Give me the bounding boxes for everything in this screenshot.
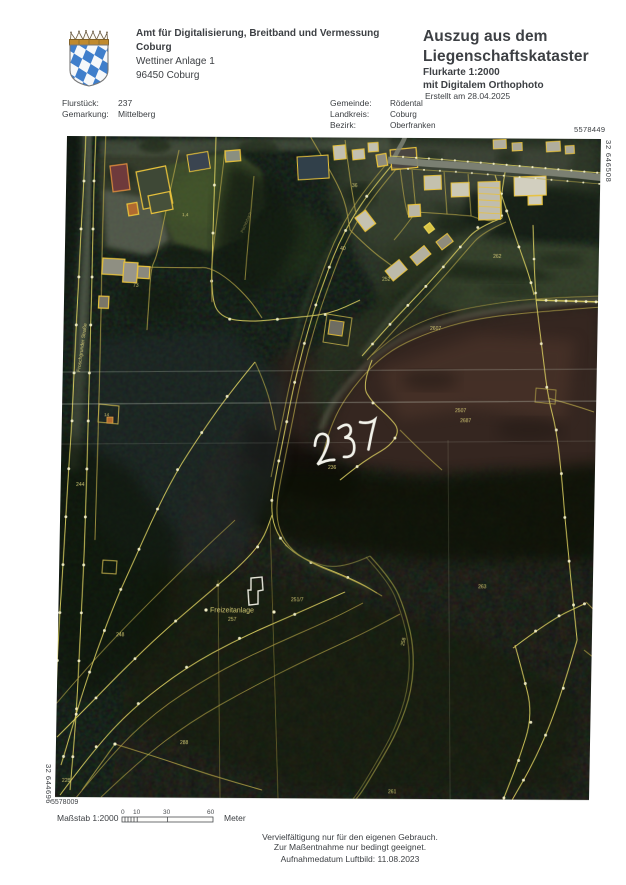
svg-text:10: 10: [133, 809, 141, 816]
svg-text:60: 60: [207, 809, 215, 816]
svg-text:Freizeitanlage: Freizeitanlage: [210, 607, 254, 614]
svg-text:228: 228: [62, 778, 71, 784]
svg-text:262: 262: [493, 254, 502, 260]
svg-text:248: 248: [116, 632, 125, 638]
svg-text:73: 73: [133, 283, 139, 289]
svg-text:236: 236: [328, 465, 337, 471]
svg-text:261: 261: [388, 789, 397, 795]
svg-text:251/7: 251/7: [291, 597, 304, 603]
svg-text:2687: 2687: [460, 418, 471, 424]
svg-text:30: 30: [163, 809, 171, 816]
svg-text:288: 288: [180, 740, 189, 746]
svg-text:252: 252: [382, 277, 391, 283]
svg-text:0: 0: [121, 809, 125, 816]
svg-text:257: 257: [228, 617, 237, 623]
svg-text:263: 263: [478, 584, 487, 590]
svg-text:244: 244: [76, 482, 85, 488]
svg-text:2507: 2507: [455, 408, 466, 414]
svg-text:2607: 2607: [430, 326, 441, 332]
svg-text:1,4: 1,4: [182, 212, 189, 217]
svg-text:14: 14: [104, 412, 110, 417]
svg-text:36: 36: [352, 183, 358, 189]
svg-text:40: 40: [340, 246, 346, 252]
